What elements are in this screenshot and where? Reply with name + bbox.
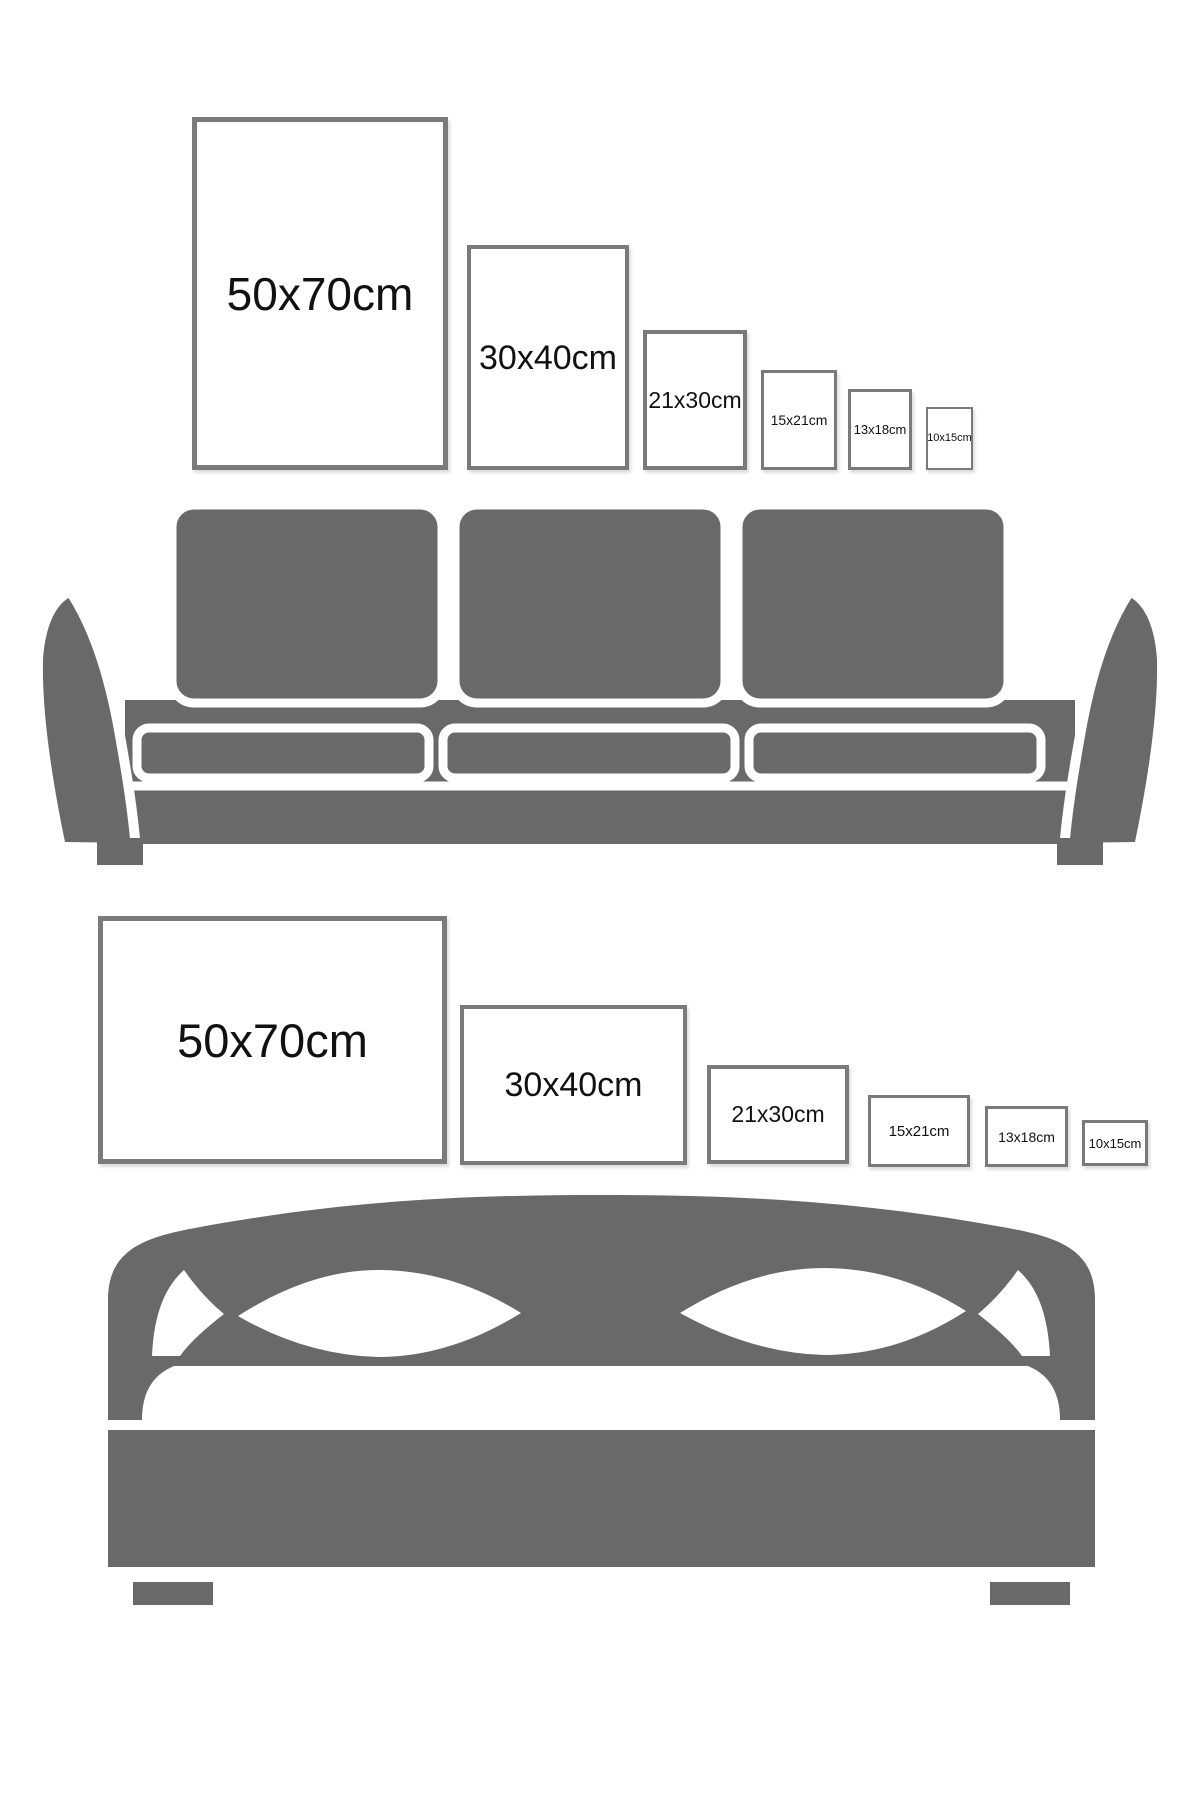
frame-portrait-13x18: 13x18cm [848,389,912,470]
size-label: 21x30cm [731,1103,824,1126]
size-label: 50x70cm [227,271,414,317]
size-label: 10x15cm [927,433,972,444]
size-label: 13x18cm [998,1130,1055,1144]
frame-portrait-50x70: 50x70cm [192,117,448,470]
size-label: 13x18cm [854,423,907,436]
frame-landscape-13x18: 13x18cm [985,1106,1068,1167]
size-label: 30x40cm [505,1068,643,1102]
frame-landscape-15x21: 15x21cm [868,1095,970,1167]
poster-size-guide: 50x70cm 30x40cm 21x30cm 15x21cm 13x18cm … [0,0,1200,1800]
frame-landscape-30x40: 30x40cm [460,1005,687,1165]
bed-icon [100,1190,1110,1610]
size-label: 21x30cm [648,389,741,412]
size-label: 50x70cm [177,1017,368,1064]
frame-landscape-21x30: 21x30cm [707,1065,849,1164]
size-label: 15x21cm [771,413,828,427]
frame-portrait-15x21: 15x21cm [761,370,837,470]
size-label: 30x40cm [479,341,617,375]
frame-landscape-50x70: 50x70cm [98,916,447,1164]
frame-portrait-30x40: 30x40cm [467,245,629,470]
size-label: 10x15cm [1089,1137,1142,1150]
frame-landscape-10x15: 10x15cm [1082,1120,1148,1166]
size-label: 15x21cm [889,1124,950,1139]
frame-portrait-21x30: 21x30cm [643,330,747,470]
frame-portrait-10x15: 10x15cm [926,407,973,470]
sofa-icon [30,490,1170,870]
